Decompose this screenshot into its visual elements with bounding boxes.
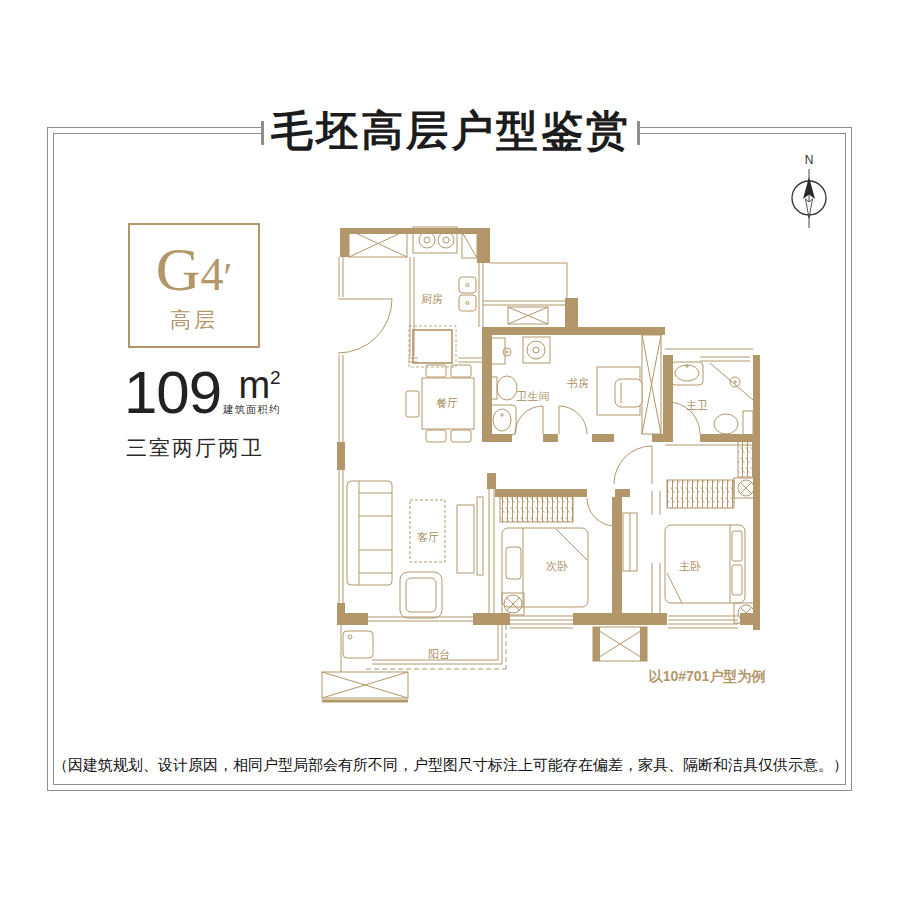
washing-machine-icon xyxy=(523,337,550,363)
furniture xyxy=(343,227,758,658)
floor-plan: 厨房 餐厅 卫生间 书房 主卫 客厅 次卧 主卧 阳台 以10#701户型为例 xyxy=(310,215,780,705)
tv-cabinet xyxy=(457,497,483,575)
kitchen-sink-icon xyxy=(459,277,476,311)
area-note: 建筑面积约 xyxy=(223,403,281,417)
room-label-dining: 餐厅 xyxy=(436,397,458,409)
room-label-master-bedroom: 主卧 xyxy=(679,560,701,572)
room-label-master-bathroom: 主卫 xyxy=(686,399,708,411)
unit-code-prime: ′ xyxy=(224,254,233,299)
room-label-bathroom: 卫生间 xyxy=(516,390,550,402)
unit-layout-summary: 三室两厅两卫 xyxy=(126,434,264,462)
wardrobe-second-bedroom xyxy=(500,492,573,522)
disclaimer-text: （因建筑规划、设计原因，相同户型局部会有所不同，户型图尺寸标注上可能存在偏差，家… xyxy=(0,756,901,775)
master-toilet-icon xyxy=(714,411,753,437)
compass-needle-icon xyxy=(792,169,826,228)
room-label-study: 书房 xyxy=(567,377,589,389)
unit-tier-label: 高层 xyxy=(170,306,218,334)
wardrobe-master-bedroom xyxy=(667,480,734,508)
area-unit: m2 xyxy=(238,370,280,400)
drain-symbol-second-bedroom xyxy=(502,593,524,615)
balcony-washer-icon xyxy=(343,631,373,658)
bed-master-bedroom xyxy=(665,525,745,603)
armchair-icon xyxy=(400,572,442,618)
toilet-icon xyxy=(490,376,517,400)
sofa-icon xyxy=(347,481,392,585)
page-title: 毛坯高层户型鉴赏 xyxy=(266,103,636,159)
shower-corner xyxy=(710,363,753,400)
area-value: 109 xyxy=(124,368,221,417)
compass: N xyxy=(783,148,835,234)
frame-terminator-right xyxy=(637,121,640,145)
unit-area: 109 m2 建筑面积约 xyxy=(124,368,281,417)
room-label-living-room: 客厅 xyxy=(417,531,439,543)
unit-code-letter: G xyxy=(156,235,201,303)
desk-icon xyxy=(597,367,642,415)
bath-sink-icon xyxy=(491,338,511,364)
floorplan-poster: { "title": "毛坯高层户型鉴赏", "compass_label": … xyxy=(0,0,901,901)
room-label-second-bedroom: 次卧 xyxy=(546,560,568,572)
example-caption: 以10#701户型为例 xyxy=(649,668,766,684)
structure-lines xyxy=(322,230,758,701)
compass-north-label: N xyxy=(805,153,814,167)
range-hood-icon xyxy=(462,232,477,258)
unit-code-card: G4′ 高层 xyxy=(128,223,260,348)
frame-terminator-left xyxy=(261,121,264,145)
room-label-balcony: 阳台 xyxy=(428,648,450,660)
kitchen-island xyxy=(409,326,456,367)
room-label-kitchen: 厨房 xyxy=(421,293,443,305)
basin-icon xyxy=(488,405,516,435)
unit-code: G4′ xyxy=(156,238,233,300)
unit-code-number: 4 xyxy=(201,249,224,300)
master-bath-sink-icon xyxy=(671,362,703,385)
